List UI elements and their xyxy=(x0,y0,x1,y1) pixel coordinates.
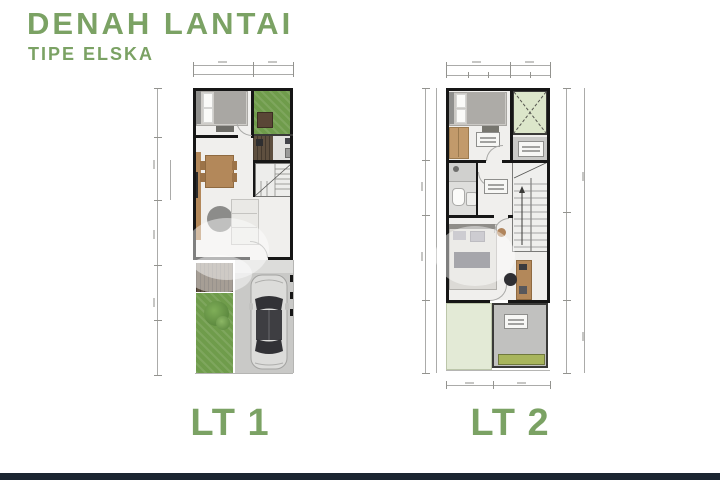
appliance xyxy=(256,139,263,146)
room-label xyxy=(484,179,508,194)
dim-label-mark xyxy=(582,172,584,181)
pillow xyxy=(203,108,213,123)
dim-label-mark xyxy=(153,160,155,169)
dim-tick xyxy=(293,62,294,77)
dim-label-mark xyxy=(153,230,155,239)
staircase xyxy=(512,160,550,252)
dimension-line xyxy=(170,160,171,200)
shower-drain xyxy=(453,166,459,172)
wall xyxy=(547,88,550,303)
dimension-line xyxy=(436,88,437,373)
bed-headboard xyxy=(449,92,454,124)
dim-tick xyxy=(563,88,571,89)
wall xyxy=(193,135,238,138)
dim-tick xyxy=(154,88,162,89)
dining-chair xyxy=(232,173,237,182)
wall xyxy=(446,215,494,218)
dining-chair xyxy=(232,161,237,170)
room-label xyxy=(518,141,544,157)
dimension-line xyxy=(584,88,585,373)
dim-tick xyxy=(550,381,551,389)
dim-tick xyxy=(550,62,551,78)
dim-label-mark xyxy=(465,382,474,384)
floorplan-lt2 xyxy=(420,52,600,404)
dim-tick xyxy=(422,88,430,89)
car-top-view xyxy=(249,273,289,371)
dim-tick xyxy=(563,212,571,213)
dim-tick xyxy=(510,62,511,78)
watermark xyxy=(186,255,252,293)
plot-boundary xyxy=(446,370,550,371)
dimension-line xyxy=(446,75,550,76)
toilet xyxy=(452,188,465,206)
planter-box xyxy=(498,354,545,365)
wall xyxy=(253,163,255,197)
bed-duvet xyxy=(467,92,505,124)
dim-tick xyxy=(154,320,162,321)
pillow xyxy=(203,93,213,108)
plot-boundary xyxy=(293,260,294,373)
dim-tick xyxy=(422,160,430,161)
page-title: DENAH LANTAI xyxy=(27,6,293,42)
page-subtitle: TIPE ELSKA xyxy=(28,44,154,65)
dimension-line xyxy=(425,88,426,373)
roof-deck xyxy=(446,303,492,370)
dim-tick xyxy=(154,265,162,266)
dining-chair xyxy=(200,161,205,170)
dim-tick xyxy=(446,62,447,78)
dim-tick xyxy=(154,200,162,201)
staircase xyxy=(255,163,292,197)
dim-tick xyxy=(563,300,571,301)
dimension-line xyxy=(446,385,550,386)
wardrobe-line xyxy=(458,127,459,157)
dim-tick xyxy=(563,373,571,374)
desk-monitor xyxy=(519,264,527,270)
dining-table xyxy=(205,155,234,188)
dim-tick xyxy=(154,375,162,376)
dining-chair xyxy=(200,173,205,182)
wall xyxy=(510,88,513,163)
dim-label-mark xyxy=(421,252,423,261)
dim-tick xyxy=(488,72,489,78)
wall xyxy=(446,160,486,163)
sofa-cushion-line xyxy=(231,213,257,214)
pillow xyxy=(456,109,466,123)
wall xyxy=(253,160,293,163)
dim-tick xyxy=(253,62,254,77)
wall xyxy=(502,160,550,163)
bed-bench xyxy=(216,126,234,132)
plan-label-lt1: LT 1 xyxy=(150,402,310,445)
footer-bar xyxy=(0,473,720,480)
dim-tick xyxy=(422,373,430,374)
dim-tick xyxy=(422,215,430,216)
outdoor-table xyxy=(257,112,273,128)
bush-plant xyxy=(216,316,230,330)
dim-tick xyxy=(446,381,447,389)
desk-item xyxy=(519,286,527,294)
dim-label-mark xyxy=(153,298,155,307)
plan-label-lt2: LT 2 xyxy=(420,402,600,445)
wall xyxy=(290,88,293,260)
dim-label-mark xyxy=(525,61,534,63)
dimension-line xyxy=(157,88,158,375)
window-line xyxy=(254,134,293,136)
wall xyxy=(193,88,293,91)
room-label xyxy=(476,132,500,147)
dimension-line xyxy=(193,65,293,66)
watermark xyxy=(435,226,515,286)
dim-tick xyxy=(468,72,469,78)
dim-tick xyxy=(154,137,162,138)
dimension-line xyxy=(446,65,550,66)
dim-tick xyxy=(493,381,494,389)
wall xyxy=(476,163,478,215)
floorplan-sheet: DENAH LANTAI TIPE ELSKA xyxy=(0,0,720,480)
plot-boundary xyxy=(195,373,293,374)
dim-tick xyxy=(530,72,531,78)
wardrobe xyxy=(449,127,469,159)
dim-tick xyxy=(422,300,430,301)
void-cross-marks xyxy=(512,90,548,135)
dim-label-mark xyxy=(218,61,227,63)
dim-tick xyxy=(193,62,194,77)
dim-label-mark xyxy=(421,182,423,191)
pillow xyxy=(456,94,466,108)
dim-label-mark xyxy=(472,61,481,63)
dimension-line xyxy=(193,74,293,75)
bed-headboard xyxy=(196,91,201,124)
dim-label-mark xyxy=(582,332,584,341)
dim-label-mark xyxy=(517,382,526,384)
wall xyxy=(446,88,550,91)
room-label xyxy=(504,314,528,329)
dim-label-mark xyxy=(268,61,277,63)
dimension-line xyxy=(566,88,567,373)
